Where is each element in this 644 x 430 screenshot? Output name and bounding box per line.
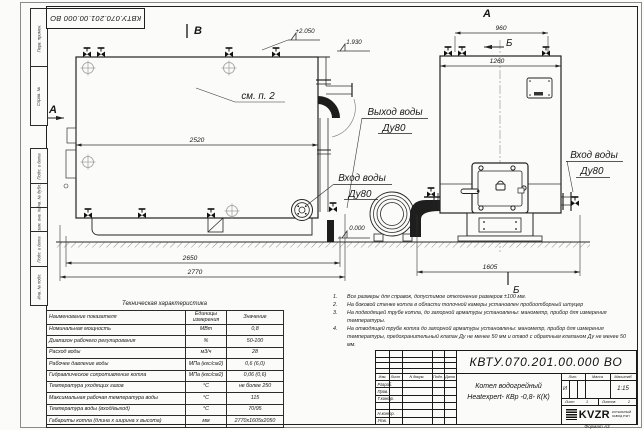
sheets-total: 2 bbox=[628, 400, 630, 404]
format-note: Формат А3 bbox=[558, 424, 636, 429]
kvzr-logo-caption: КОТЕЛЬНЫЙ ЗАВОД РЭП bbox=[612, 411, 631, 419]
sheet-label: Лист bbox=[565, 400, 575, 404]
dim-front-base: 2650 bbox=[182, 255, 198, 262]
tech-table-title: Техническая характеристика bbox=[46, 301, 283, 307]
callout-water-outlet-dn: Ду80 bbox=[382, 123, 406, 134]
note-item: 4.На отводящей трубе котла до запорной а… bbox=[330, 325, 633, 349]
dim-front-overall: 2770 bbox=[187, 269, 203, 276]
side-view-drawing: 1260 960 1605 bbox=[417, 25, 580, 276]
col-podp: Подп. bbox=[432, 375, 444, 379]
door-handle bbox=[461, 189, 479, 194]
view-arrow-a: А bbox=[48, 104, 57, 116]
ground-hatching bbox=[56, 242, 590, 248]
scale-value: 1:15 bbox=[610, 380, 636, 398]
control-panel bbox=[527, 78, 552, 98]
tech-table-header: Наименование показателя Единицыизмерения… bbox=[47, 311, 284, 325]
table-row: Габариты котла (длина х ширина х высота)… bbox=[47, 416, 284, 427]
table-row: Номинальная мощностьМВт0,8 bbox=[47, 325, 284, 336]
table-row: Температура воды (вход/выход)°С70/95 bbox=[47, 404, 284, 415]
role-utv: Утв. bbox=[378, 418, 387, 423]
table-row: Расход водым3/ч28 bbox=[47, 347, 284, 358]
company-logo: KVZR КОТЕЛЬНЫЙ ЗАВОД РЭП bbox=[561, 405, 636, 424]
section-letter-b-top: Б bbox=[506, 38, 513, 49]
note-item: 3.На подводящей трубе котла, до запорной… bbox=[330, 309, 633, 325]
sheets-label: Листов bbox=[602, 400, 615, 404]
dim-side-overall: 1605 bbox=[483, 264, 498, 271]
dim-side-width: 1260 bbox=[490, 58, 505, 65]
scale-header: Масштаб bbox=[610, 375, 636, 379]
view-letter-b: В bbox=[194, 25, 202, 37]
sheet-number: 1 bbox=[586, 400, 588, 404]
col-data: Дата bbox=[444, 375, 456, 379]
table-row: Рабочее давление водыМПа (кгс/см2)0,6 (6… bbox=[47, 359, 284, 370]
tech-table: Наименование показателя Единицыизмерения… bbox=[46, 310, 284, 428]
callout-water-inlet-left-dn: Ду80 bbox=[348, 189, 372, 200]
callout-water-outlet: Выход воды bbox=[367, 107, 423, 118]
col-docnum: N докум. bbox=[402, 375, 432, 379]
doc-number: КВТУ.070.201.00.000 ВО bbox=[456, 351, 636, 373]
col-value-header: Значение bbox=[227, 311, 284, 325]
product-name: Котел водогрейный Heatexpert- КВр -0,8- … bbox=[456, 373, 561, 424]
fan-duct-elbow bbox=[410, 200, 440, 237]
role-prov: Пров. bbox=[378, 389, 389, 394]
lit-header: Лит. bbox=[561, 375, 585, 379]
notes-list: 1.Все размеры для справок, допустимое от… bbox=[330, 293, 633, 349]
col-list: Лист bbox=[389, 375, 402, 379]
note-item: 2.На боковой стенке котла в области топо… bbox=[330, 301, 633, 309]
elevation-zero: 0.000 bbox=[349, 225, 365, 232]
callout-water-inlet-right: Вход воды bbox=[570, 150, 618, 161]
kvzr-logo-text: KVZR bbox=[579, 409, 610, 421]
drawing-sheet: Перв. примен. Справ. № Подп. и дата Инв.… bbox=[0, 0, 644, 430]
table-row: Диапазон рабочего регулирования%50-100 bbox=[47, 336, 284, 347]
col-izm: Изм. bbox=[376, 375, 389, 379]
callout-water-inlet-right-dn: Ду80 bbox=[580, 166, 604, 177]
table-row: Максимальная рабочая температура воды°С1… bbox=[47, 393, 284, 404]
smoke-fan bbox=[370, 188, 441, 241]
kvzr-logo-icon bbox=[566, 409, 577, 420]
dim-top-nozzles: 960 bbox=[495, 25, 506, 32]
lit-value: И bbox=[561, 380, 569, 398]
table-row: Гидравлическое сопротивление котлаМПа (к… bbox=[47, 370, 284, 381]
front-inlet-flange bbox=[292, 200, 313, 221]
elevation-top: +2.050 bbox=[295, 28, 315, 35]
ash-box-base bbox=[458, 213, 542, 241]
callout-see-item: см. п. 2 bbox=[241, 91, 275, 102]
view-letter-a: А bbox=[482, 8, 491, 20]
col-name-header: Наименование показателя bbox=[47, 311, 186, 325]
role-razrab: Разраб. bbox=[378, 382, 393, 387]
note-item: 1.Все размеры для справок, допустимое от… bbox=[330, 293, 633, 301]
col-units-header: Единицыизмерения bbox=[186, 311, 227, 325]
dim-front-width: 2520 bbox=[189, 137, 205, 144]
side-inlet-flange bbox=[561, 192, 579, 211]
elevation-outlet: 1.930 bbox=[346, 39, 362, 46]
role-tkontr: Т.контр. bbox=[378, 396, 395, 401]
callout-water-inlet-left: Вход воды bbox=[338, 173, 386, 184]
front-outlet-duct bbox=[316, 57, 355, 242]
title-block: Изм. Лист N докум. Подп. Дата Разраб. Пр… bbox=[375, 350, 637, 425]
table-row: Температура уходящих газов°Сне более 250 bbox=[47, 381, 284, 392]
role-nkontr: Н.контр. bbox=[378, 411, 395, 416]
mass-header: Масса bbox=[585, 375, 610, 379]
